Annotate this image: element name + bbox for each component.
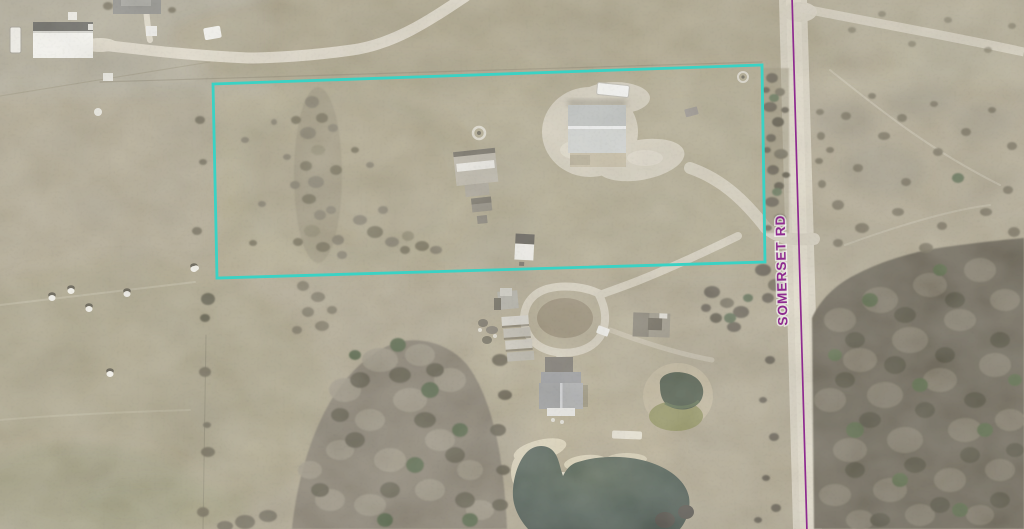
aerial-map-canvas[interactable]: SOMERSET RD bbox=[0, 0, 1024, 529]
aerial-map-viewport[interactable]: SOMERSET RD bbox=[0, 0, 1024, 529]
imagery-grain-overlay bbox=[0, 0, 1024, 529]
road-label: SOMERSET RD bbox=[773, 214, 791, 325]
